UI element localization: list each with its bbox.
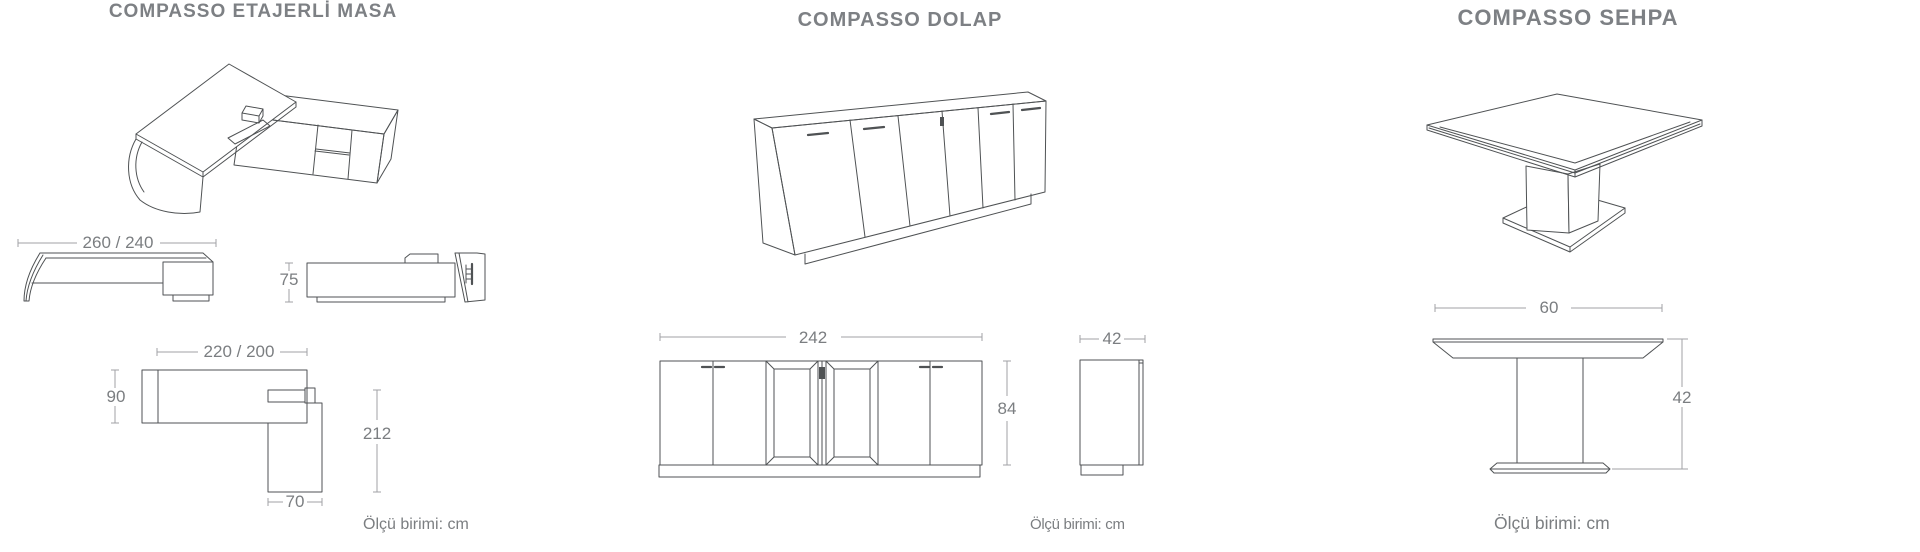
- unit-note-table: Ölçü birimi: cm: [1494, 513, 1610, 534]
- product-title-desk: COMPASSO ETAJERLİ MASA: [109, 1, 397, 23]
- table-isometric-drawing: [1410, 85, 1710, 255]
- dim-label-desk-height: 75: [280, 270, 299, 289]
- product-title-table: COMPASSO SEHPA: [1458, 5, 1679, 31]
- dim-label-cabinet-width: 242: [799, 328, 827, 347]
- desk-isometric-drawing: [100, 50, 420, 230]
- furniture-spec-sheet: { "page": { "background": "#ffffff", "li…: [0, 0, 1920, 552]
- dim-label-return-width: 70: [286, 492, 305, 511]
- cabinet-front-elevation-drawing: 242 84: [650, 325, 1020, 480]
- dim-label-cabinet-depth: 42: [1103, 329, 1122, 348]
- desk-front-elevation-drawing: 75: [276, 240, 491, 310]
- dim-label-desk-width: 220 / 200: [204, 342, 275, 361]
- dim-label-return-length: 212: [363, 424, 391, 443]
- cabinet-side-elevation-drawing: 42: [1070, 325, 1160, 480]
- dim-label-desk-total-width: 260 / 240: [83, 233, 154, 252]
- product-title-cabinet: COMPASSO DOLAP: [798, 9, 1003, 32]
- desk-plan-view-drawing: 220 / 200 90 212 70: [100, 340, 400, 515]
- dim-label-table-width: 60: [1540, 298, 1559, 317]
- dim-label-desk-depth: 90: [107, 387, 126, 406]
- dim-label-cabinet-height: 84: [998, 399, 1017, 418]
- unit-note-cabinet: Ölçü birimi: cm: [1030, 516, 1125, 533]
- table-front-elevation-drawing: 60 42: [1420, 295, 1700, 480]
- dim-label-table-height: 42: [1673, 388, 1692, 407]
- desk-side-elevation-drawing: 260 / 240: [14, 233, 224, 308]
- cabinet-isometric-drawing: [740, 60, 1100, 280]
- unit-note-desk: Ölçü birimi: cm: [363, 516, 469, 534]
